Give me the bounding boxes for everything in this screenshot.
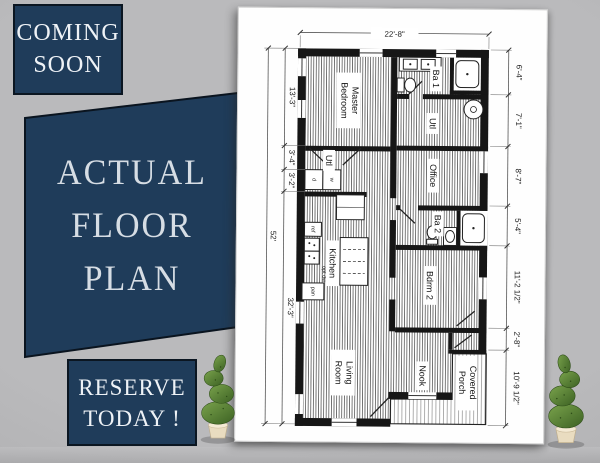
bath1-tub: [454, 58, 481, 91]
marketing-graphic: ACTUAL FLOOR PLAN COMING SOON RESERVE TO…: [0, 0, 600, 463]
coming-soon-line2: SOON: [15, 49, 121, 81]
actual-floor-plan-banner: ACTUAL FLOOR PLAN: [28, 147, 236, 306]
washer-dryer: d w: [305, 170, 341, 190]
office-label: Office: [428, 164, 438, 187]
tree-foliage: [202, 354, 235, 425]
water-heater: [464, 100, 483, 119]
floor-plan-drawing: d w ref opt dw pan Mast: [235, 8, 547, 444]
banner-line-floor: FLOOR: [28, 200, 236, 253]
washer-label: w: [328, 177, 334, 182]
bedroom2-label: Bdrm 2: [425, 271, 435, 300]
coming-soon-line1: COMING: [15, 17, 121, 49]
dim-right-2: 8'-7": [514, 168, 523, 184]
opt-dishwasher-label: opt dw: [320, 266, 326, 282]
banner-line-plan: PLAN: [28, 253, 236, 306]
bath1-label: Ba 1: [431, 70, 441, 89]
bath1-toilet: [397, 78, 416, 92]
dim-left-total: 52': [269, 231, 278, 242]
reserve-line1: RESERVE: [69, 372, 195, 403]
banner-line-actual: ACTUAL: [28, 147, 236, 200]
dim-top: 22'-8": [385, 30, 405, 39]
floor-plan-paper: d w ref opt dw pan Mast: [234, 7, 548, 445]
dim-left-0: 13'-3": [288, 87, 297, 107]
master-bedroom-label-line2: Bedroom: [339, 82, 349, 118]
utility-right-label: Utl: [428, 118, 438, 129]
dim-left-1: 3'-4": [287, 150, 296, 166]
fridge-label: ref: [310, 226, 316, 233]
covered-porch-label-line1: Covered: [468, 366, 478, 400]
dim-right-3: 5'-4": [513, 218, 522, 234]
nook-label: Nook: [417, 365, 427, 386]
bath2-label: Ba 2: [433, 215, 443, 234]
living-room-label-line2: Room: [333, 361, 343, 385]
pantry-label: pan: [309, 287, 315, 296]
tree-foliage: [549, 353, 584, 428]
kitchen-label: Kitchen: [327, 248, 337, 278]
dim-right-5: 2'-8": [512, 331, 521, 347]
living-room-label-line1: Living: [344, 361, 354, 384]
coming-soon-badge: COMING SOON: [13, 4, 123, 95]
dim-right-1: 7'-1": [514, 113, 523, 129]
master-bedroom-label-line1: Master: [350, 87, 360, 114]
utility-left-label: Utl: [324, 155, 334, 166]
reserve-line2: TODAY !: [69, 403, 195, 434]
topiary-tree-left: [192, 336, 244, 450]
dim-left-3: 32'-3": [286, 297, 295, 317]
dim-right-6: 10'-9 1/2": [512, 371, 521, 405]
reserve-today-badge: RESERVE TODAY !: [67, 359, 197, 446]
topiary-tree-right: [538, 340, 594, 450]
dim-left-2: 3'-2": [287, 172, 296, 188]
dim-right-4: 11'-2 1/2": [513, 271, 522, 304]
dim-right-0: 6'-4": [514, 65, 523, 81]
covered-porch-label-line2: Porch: [457, 371, 467, 394]
dryer-label: d: [310, 178, 316, 181]
